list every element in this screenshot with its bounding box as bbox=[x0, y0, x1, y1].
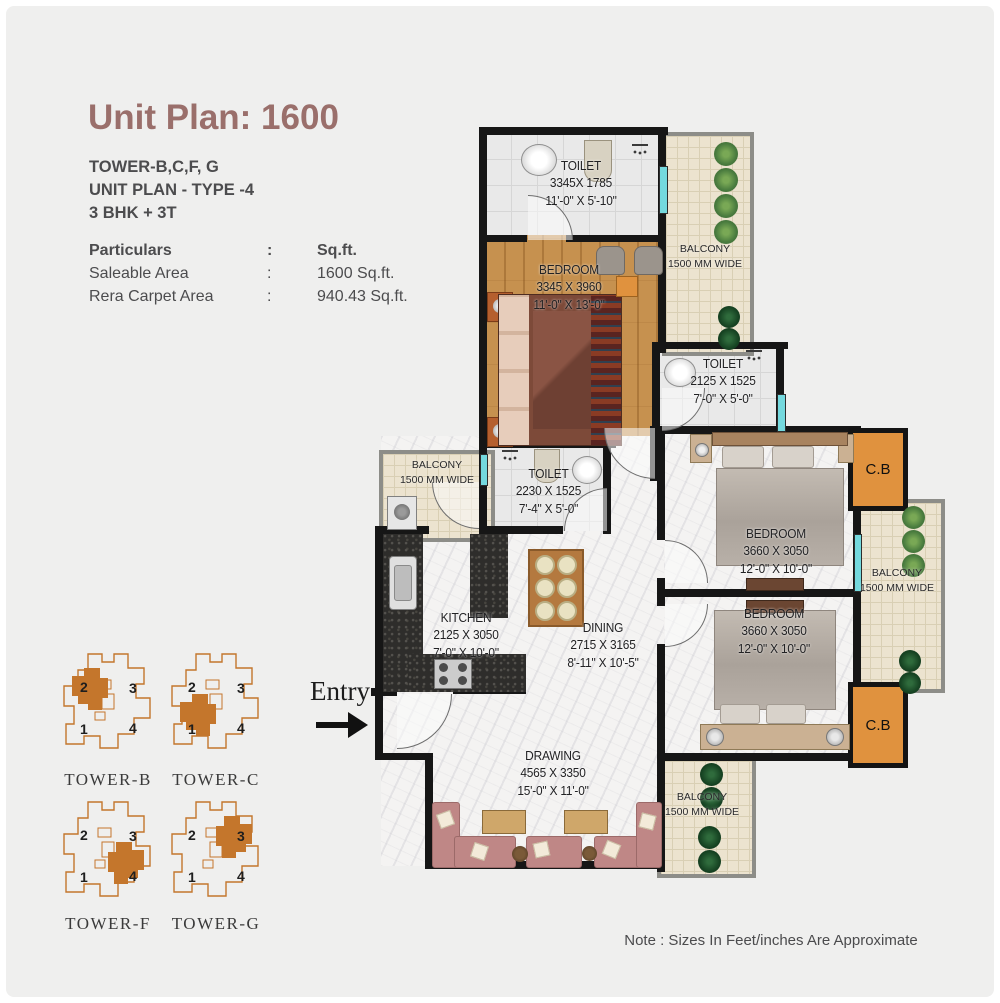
room-label-toilet-top: TOILET 3345X 1785 11'-0" X 5'-10" bbox=[515, 158, 648, 210]
plant-icon bbox=[700, 763, 723, 786]
nightstand bbox=[690, 434, 712, 463]
room-dim-mm: 2230 X 1525 bbox=[494, 483, 603, 500]
shower-icon bbox=[632, 144, 648, 157]
window bbox=[659, 166, 668, 214]
particulars-table: Particulars : Sq.ft. Saleable Area : 160… bbox=[89, 242, 419, 311]
row-value: 940.43 Sq.ft. bbox=[317, 288, 408, 306]
wall bbox=[657, 578, 665, 606]
pillow bbox=[772, 446, 814, 468]
coffee-table bbox=[482, 810, 526, 834]
particulars-label: Particulars bbox=[89, 242, 172, 260]
unit-plan-page: Unit Plan: 1600 TOWER-B,C,F, G UNIT PLAN… bbox=[6, 6, 994, 997]
tower-list-line: TOWER-B,C,F, G bbox=[89, 156, 254, 179]
colon: : bbox=[267, 242, 272, 260]
room-label-toilet-common: TOILET 2230 X 1525 7'-4" X 5'-0" bbox=[494, 466, 603, 518]
room-name: BEDROOM bbox=[711, 526, 840, 543]
unit-number: 1 bbox=[188, 721, 196, 737]
unit-number: 3 bbox=[129, 680, 137, 696]
colon: : bbox=[267, 288, 271, 306]
plant-icon bbox=[714, 220, 738, 244]
room-dim-ft: 12'-0" X 10'-0" bbox=[711, 561, 840, 578]
room-dim-ft: 7'-4" X 5'-0" bbox=[494, 501, 603, 518]
plant-icon bbox=[714, 142, 738, 166]
hob-icon bbox=[434, 659, 472, 689]
room-name: DRAWING bbox=[496, 748, 610, 765]
washing-machine-icon bbox=[387, 496, 417, 530]
plant-icon bbox=[902, 530, 925, 553]
room-label-bedroom-2: BEDROOM 3660 X 3050 12'-0" X 10'-0" bbox=[711, 526, 840, 578]
room-dim-mm: 3660 X 3050 bbox=[711, 543, 840, 560]
tower-label-f: TOWER-F bbox=[58, 914, 158, 934]
room-dim-mm: 1500 MM WIDE bbox=[666, 257, 744, 272]
wall bbox=[652, 342, 660, 434]
room-dim-mm: 3345 X 3960 bbox=[498, 279, 641, 296]
room-dim-mm: 3345X 1785 bbox=[515, 175, 648, 192]
room-dim-ft: 11'-0" X 13'-0" bbox=[498, 297, 641, 314]
coffee-table bbox=[564, 810, 608, 834]
room-name: BEDROOM bbox=[709, 606, 838, 623]
unit-number: 4 bbox=[129, 868, 137, 884]
wall bbox=[479, 526, 563, 534]
room-dim-mm: 2125 X 1525 bbox=[669, 373, 777, 390]
room-dim-mm: 2125 X 3050 bbox=[414, 627, 519, 644]
unit-number: 1 bbox=[188, 869, 196, 885]
particulars-header-row: Particulars : Sq.ft. bbox=[89, 242, 419, 265]
tower-key-f: 2 3 1 4 bbox=[58, 796, 158, 908]
wall bbox=[566, 235, 664, 242]
side-table bbox=[582, 846, 597, 861]
wall bbox=[485, 127, 668, 135]
plant-icon bbox=[714, 168, 738, 192]
wall bbox=[479, 127, 487, 453]
unit-number: 4 bbox=[237, 868, 245, 884]
pillow bbox=[766, 704, 806, 724]
cupboard-label: C.B bbox=[865, 461, 890, 478]
particulars-unit: Sq.ft. bbox=[317, 242, 357, 260]
room-dim-ft: 11'-0" X 5'-10" bbox=[515, 193, 648, 210]
cupboard-label: C.B bbox=[865, 717, 890, 734]
room-dim-mm: 1500 MM WIDE bbox=[859, 581, 935, 596]
side-table bbox=[512, 846, 528, 862]
lamp bbox=[826, 728, 844, 746]
rera-carpet-area-row: Rera Carpet Area : 940.43 Sq.ft. bbox=[89, 288, 419, 311]
room-dim-ft: 8'-11" X 10'-5" bbox=[546, 655, 660, 672]
tower-outline bbox=[166, 796, 266, 908]
room-label-balcony-kitchen: BALCONY 1500 MM WIDE bbox=[390, 458, 484, 488]
unit-number: 1 bbox=[80, 869, 88, 885]
room-label-kitchen: KITCHEN 2125 X 3050 7'-0" X 10'-0" bbox=[414, 610, 519, 662]
tower-key-b: 2 3 1 4 bbox=[58, 648, 158, 760]
entry-arrow-icon bbox=[316, 712, 370, 738]
room-name: TOILET bbox=[494, 466, 603, 483]
room-label-balcony-bottom: BALCONY 1500 MM WIDE bbox=[658, 790, 746, 820]
lamp bbox=[706, 728, 724, 746]
saleable-area-row: Saleable Area : 1600 Sq.ft. bbox=[89, 265, 419, 288]
wall bbox=[487, 235, 527, 242]
tower-key-c: 2 3 1 4 bbox=[166, 648, 266, 760]
sink-icon bbox=[389, 556, 417, 610]
room-dim-ft: 12'-0" X 10'-0" bbox=[709, 641, 838, 658]
plant-icon bbox=[718, 306, 740, 328]
room-name: BALCONY bbox=[390, 458, 484, 473]
unit-number: 2 bbox=[188, 827, 196, 843]
plant-icon bbox=[698, 850, 721, 873]
cupboard-top: C.B bbox=[848, 428, 908, 511]
bhk-line: 3 BHK + 3T bbox=[89, 202, 254, 225]
entry-label: Entry bbox=[302, 676, 378, 707]
room-label-bedroom-3: BEDROOM 3660 X 3050 12'-0" X 10'-0" bbox=[709, 606, 838, 658]
row-label: Rera Carpet Area bbox=[89, 288, 214, 306]
tower-outline bbox=[58, 648, 158, 760]
tower-label-b: TOWER-B bbox=[58, 770, 158, 790]
room-dim-ft: 7'-0" X 10'-0" bbox=[414, 645, 519, 662]
room-dim-mm: 3660 X 3050 bbox=[709, 623, 838, 640]
kitchen-counter bbox=[470, 534, 508, 618]
room-dim-mm: 1500 MM WIDE bbox=[390, 473, 484, 488]
room-label-drawing: DRAWING 4565 X 3350 15'-0" X 11'-0" bbox=[496, 748, 610, 800]
dining-table bbox=[528, 549, 584, 627]
footnote: Note : Sizes In Feet/inches Are Approxim… bbox=[606, 932, 936, 949]
unit-number: 1 bbox=[80, 721, 88, 737]
unit-number: 4 bbox=[237, 720, 245, 736]
room-label-bedroom-1: BEDROOM 3345 X 3960 11'-0" X 13'-0" bbox=[498, 262, 641, 314]
colon: : bbox=[267, 265, 271, 283]
room-dim-mm: 1500 MM WIDE bbox=[658, 805, 746, 820]
room-name: BALCONY bbox=[666, 242, 744, 257]
pillow bbox=[722, 446, 764, 468]
room-name: KITCHEN bbox=[414, 610, 519, 627]
headboard bbox=[712, 432, 848, 446]
room-name: BALCONY bbox=[658, 790, 746, 805]
unit-type-line: UNIT PLAN - TYPE -4 bbox=[89, 179, 254, 202]
row-value: 1600 Sq.ft. bbox=[317, 265, 394, 283]
wall bbox=[375, 526, 383, 696]
page-title: Unit Plan: 1600 bbox=[88, 98, 339, 138]
room-dim-ft: 15'-0" X 11'-0" bbox=[496, 783, 610, 800]
tower-outline bbox=[58, 796, 158, 908]
plant-icon bbox=[899, 650, 921, 672]
unit-number: 2 bbox=[80, 679, 88, 695]
unit-number: 3 bbox=[237, 828, 245, 844]
unit-number: 2 bbox=[80, 827, 88, 843]
room-name: BALCONY bbox=[859, 566, 935, 581]
room-label-balcony-right: BALCONY 1500 MM WIDE bbox=[859, 566, 935, 596]
unit-number: 4 bbox=[129, 720, 137, 736]
tower-label-c: TOWER-C bbox=[166, 770, 266, 790]
cushion bbox=[533, 841, 551, 859]
pillow bbox=[720, 704, 760, 724]
tower-label-g: TOWER-G bbox=[166, 914, 266, 934]
room-dim-mm: 4565 X 3350 bbox=[496, 765, 610, 782]
room-label-toilet-mid: TOILET 2125 X 1525 7'-0" X 5'-0" bbox=[669, 356, 777, 408]
room-name: TOILET bbox=[669, 356, 777, 373]
dresser bbox=[746, 578, 804, 591]
room-name: DINING bbox=[546, 620, 660, 637]
plant-icon bbox=[902, 506, 925, 529]
unit-number: 2 bbox=[188, 679, 196, 695]
room-dim-mm: 2715 X 3165 bbox=[546, 637, 660, 654]
plant-icon bbox=[714, 194, 738, 218]
plant-icon bbox=[718, 328, 740, 350]
unit-number: 3 bbox=[237, 680, 245, 696]
tower-outline bbox=[166, 648, 266, 760]
plant-icon bbox=[899, 672, 921, 694]
window bbox=[777, 394, 786, 432]
room-name: BEDROOM bbox=[498, 262, 641, 279]
wall bbox=[657, 434, 665, 540]
row-label: Saleable Area bbox=[89, 265, 189, 283]
room-label-balcony-top: BALCONY 1500 MM WIDE bbox=[666, 242, 744, 272]
tower-key-g: 2 3 1 4 bbox=[166, 796, 266, 908]
unit-number: 3 bbox=[129, 828, 137, 844]
room-name: TOILET bbox=[515, 158, 648, 175]
shower-icon bbox=[502, 450, 518, 463]
bed-master bbox=[498, 294, 622, 446]
cupboard-bottom: C.B bbox=[848, 682, 908, 768]
plant-icon bbox=[698, 826, 721, 849]
room-dim-ft: 7'-0" X 5'-0" bbox=[669, 391, 777, 408]
room-label-dining: DINING 2715 X 3165 8'-11" X 10'-5" bbox=[546, 620, 660, 672]
